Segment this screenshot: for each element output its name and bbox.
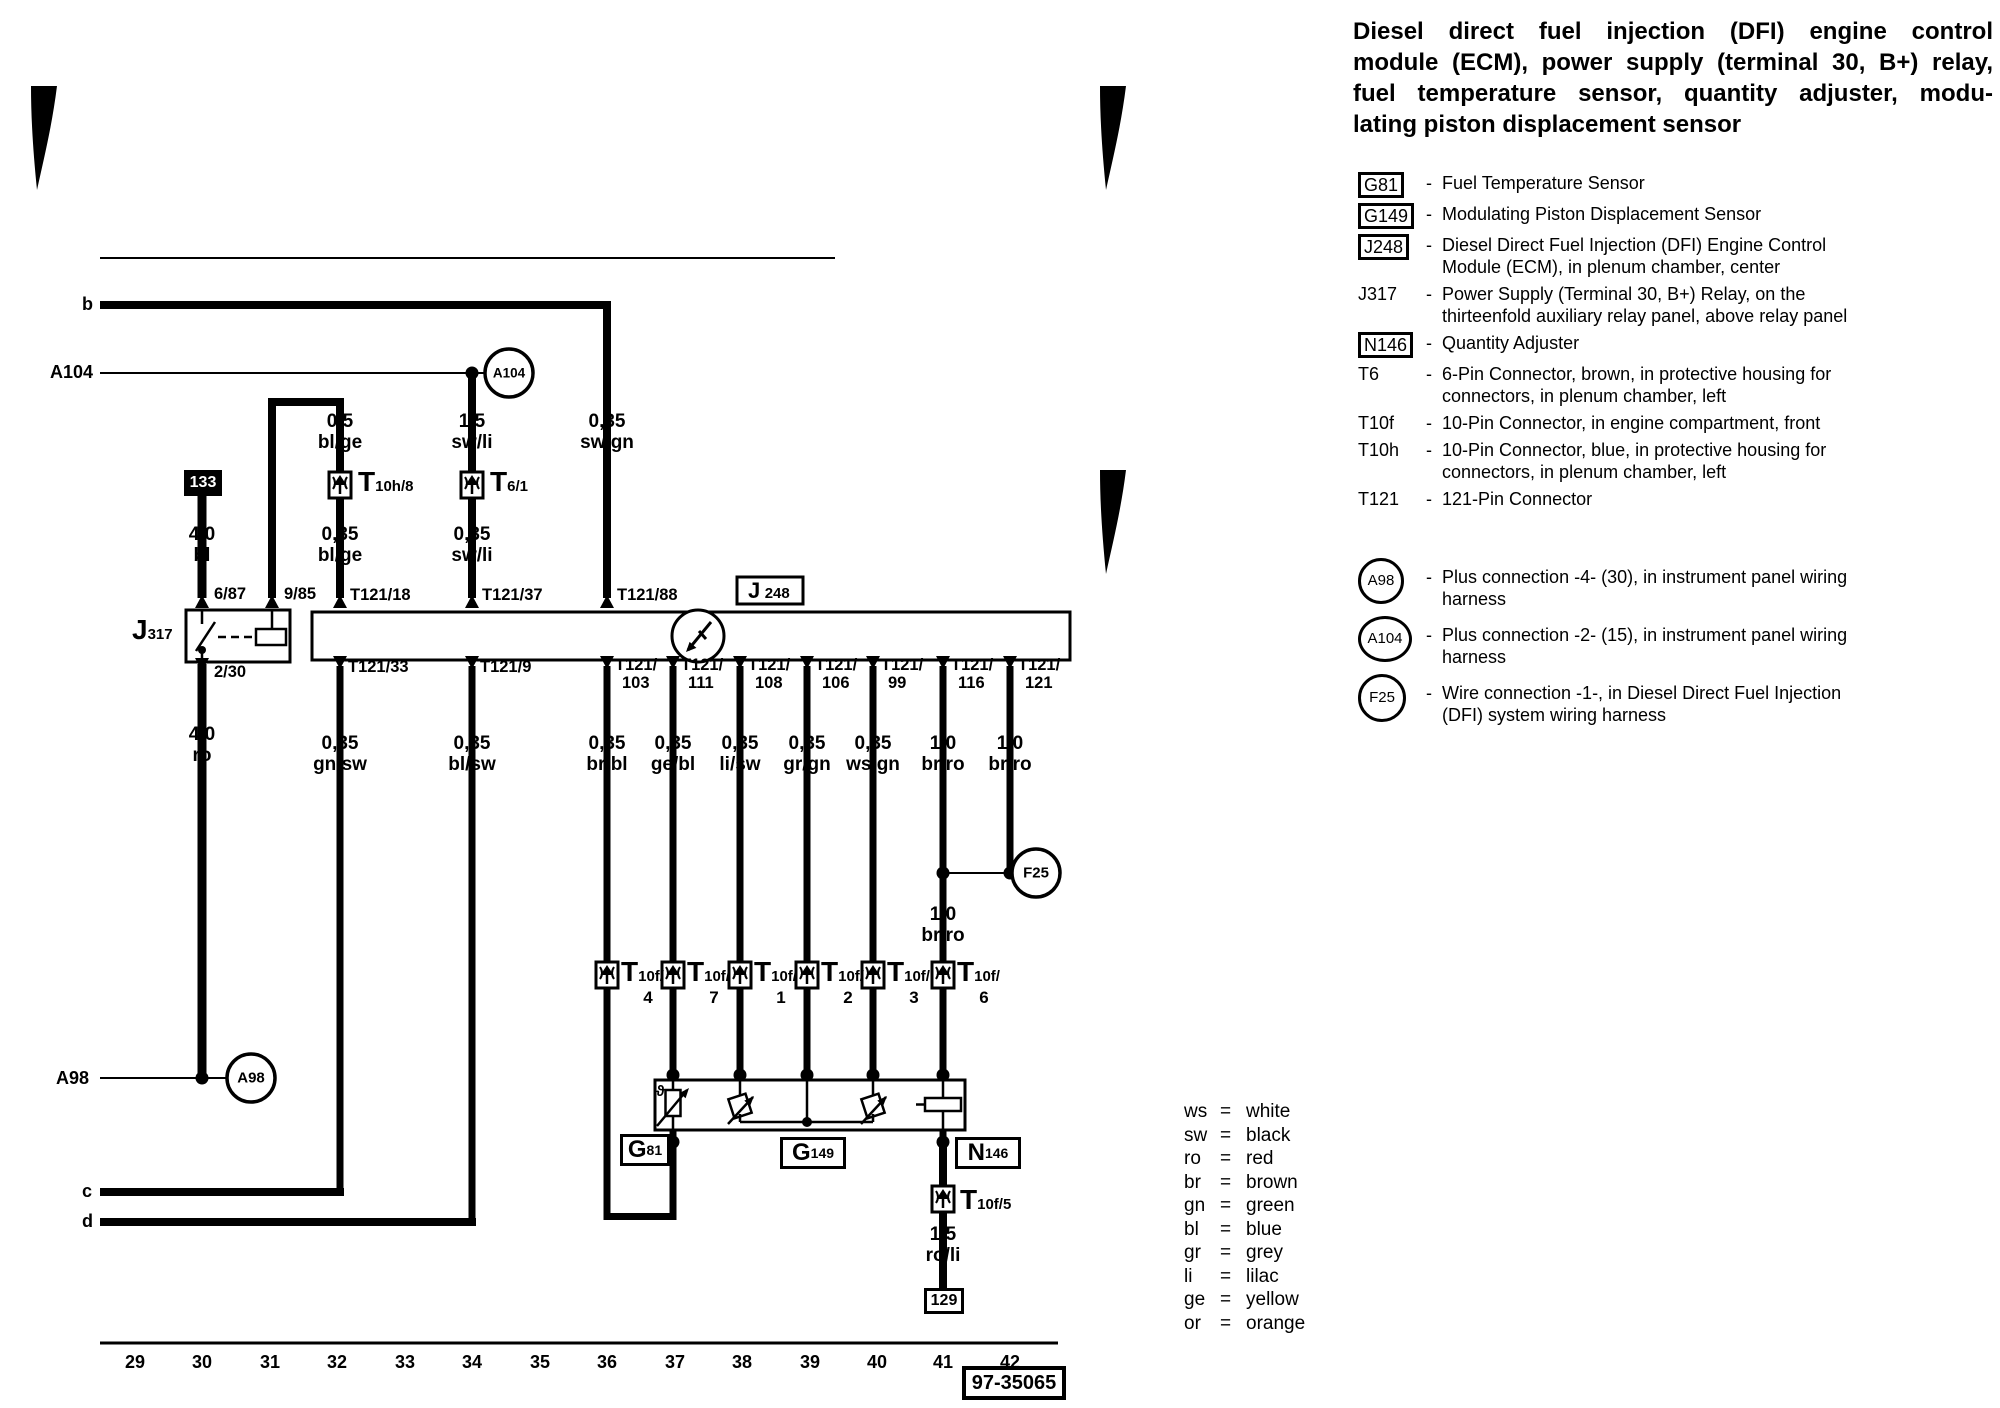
wire-color-key: ws=white sw=black ro=red br=brown gn=gre… — [1184, 1100, 1305, 1335]
ecm-j248-label: J 248 — [748, 578, 790, 604]
component-label-n146: N146 — [955, 1137, 1021, 1169]
legend-row: T6-6-Pin Connector, brown, in protective… — [1358, 363, 1918, 407]
ecm-pin-label: T121/37 — [482, 586, 543, 604]
track-number: 41 — [933, 1352, 953, 1373]
wire-label: 4,0ro — [189, 724, 215, 766]
wire-label: 0,35gr/gn — [783, 733, 831, 775]
color-key-row: ws=white — [1184, 1100, 1305, 1124]
terminal-129: 129 — [924, 1288, 964, 1314]
relay-pin-label: 6/87 — [214, 585, 246, 603]
wire-label: 0,35bl/ge — [318, 524, 362, 566]
color-key-row: or=orange — [1184, 1312, 1305, 1336]
legend-row: A98-Plus connection -4- (30), in instrum… — [1358, 566, 1918, 610]
legend-row: G81-Fuel Temperature Sensor — [1358, 172, 1918, 198]
track-number: 32 — [327, 1352, 347, 1373]
ecm-pin-label: T121/99 — [881, 656, 923, 692]
ecm-pin-label: T121/106 — [815, 656, 857, 692]
rail-label-c: c — [82, 1181, 92, 1202]
rail-label-b: b — [82, 294, 93, 315]
continuation-arrow — [1100, 470, 1126, 574]
relay-pin-label: 2/30 — [214, 663, 246, 681]
ecm-pin-label: T121/33 — [348, 658, 409, 676]
continuation-arrow — [1100, 86, 1126, 190]
wire-label: 0,35br/bl — [586, 733, 627, 775]
wire-label: 0,5bl/ge — [318, 411, 362, 453]
wire-label: 0,35li/sw — [719, 733, 760, 775]
rail-label-d: d — [82, 1211, 93, 1232]
wire-label: 0,35ws/gn — [846, 733, 900, 775]
wire-label: 1,0br/ro — [921, 904, 964, 946]
track-number: 39 — [800, 1352, 820, 1373]
track-number: 29 — [125, 1352, 145, 1373]
component-label-g149: G149 — [780, 1137, 846, 1169]
plug-connector-icon — [329, 472, 351, 498]
connector-pin-number: 1 — [776, 988, 785, 1008]
ecm-pin-label: T121/121 — [1018, 656, 1060, 692]
legend-row: F25-Wire connection -1-, in Diesel Direc… — [1358, 682, 1918, 726]
wire-label: 0,35gn/sw — [313, 733, 367, 775]
wire-label: 1,5sw/li — [451, 411, 492, 453]
legend-row: N146-Quantity Adjuster — [1358, 332, 1918, 358]
legend-row: T10h-10-Pin Connector, blue, in protecti… — [1358, 439, 1918, 483]
connector-label-t10f5: T10f/5 — [960, 1184, 1011, 1216]
wire-label: 0,35bl/sw — [448, 733, 496, 775]
connector-label-t10f: T10f/ — [887, 956, 930, 988]
rail-label-a104: A104 — [50, 362, 93, 383]
continuation-arrow — [31, 86, 57, 190]
track-number: 38 — [732, 1352, 752, 1373]
track-number: 34 — [462, 1352, 482, 1373]
wire-connection-f25: F25 — [1023, 865, 1049, 882]
color-key-row: ge=yellow — [1184, 1288, 1305, 1312]
terminal-133: 133 — [184, 470, 222, 496]
legend-row: T121-121-Pin Connector — [1358, 488, 1918, 510]
wiring-diagram-page: { "title_lines": [ "Diesel direct fuel i… — [0, 0, 2000, 1408]
track-number: 35 — [530, 1352, 550, 1373]
wire-label: 0,35sw/gn — [580, 411, 634, 453]
legend-row: T10f-10-Pin Connector, in engine compart… — [1358, 412, 1918, 434]
legend-row: A104-Plus connection -2- (15), in instru… — [1358, 624, 1918, 668]
track-number: 30 — [192, 1352, 212, 1373]
connector-label-t10f: T10f/ — [687, 956, 730, 988]
wire-label: 0,35sw/li — [451, 524, 492, 566]
legend-row: G149-Modulating Piston Displacement Sens… — [1358, 203, 1918, 229]
ecm-pin-label: T121/108 — [748, 656, 790, 692]
ecm-pin-label: T121/103 — [615, 656, 657, 692]
component-label-g81: G81 — [620, 1134, 670, 1166]
relay-pin-label: 9/85 — [284, 585, 316, 603]
wire-label: 1,0br/ro — [988, 733, 1031, 775]
ecm-pin-label: T121/9 — [480, 658, 531, 676]
wire-label: 0,35ge/bl — [651, 733, 695, 775]
connector-pin-number: 6 — [979, 988, 988, 1008]
temperature-theta-symbol: ϑ — [656, 1083, 665, 1100]
plus-connection-a98: A98 — [237, 1070, 265, 1087]
connector-label-t10f: T10f/ — [754, 956, 797, 988]
connector-pin-number: 3 — [909, 988, 918, 1008]
connector-label-t10f: T10f/ — [957, 956, 1000, 988]
page-title: Diesel direct fuel injection (DFI) engin… — [1353, 16, 1993, 140]
color-key-row: sw=black — [1184, 1124, 1305, 1148]
component-legend: G81-Fuel Temperature Sensor G149-Modulat… — [1358, 172, 1918, 740]
track-number: 37 — [665, 1352, 685, 1373]
track-number: 36 — [597, 1352, 617, 1373]
connector-label-t10h8: T10h/8 — [358, 466, 413, 498]
ecm-pin-label: T121/18 — [350, 586, 411, 604]
color-key-row: gr=grey — [1184, 1241, 1305, 1265]
track-number: 33 — [395, 1352, 415, 1373]
color-key-row: gn=green — [1184, 1194, 1305, 1218]
plug-connector-icon — [461, 472, 483, 498]
color-key-row: br=brown — [1184, 1171, 1305, 1195]
connector-pin-number: 7 — [709, 988, 718, 1008]
legend-row: J248-Diesel Direct Fuel Injection (DFI) … — [1358, 234, 1918, 278]
connector-pin-number: 2 — [843, 988, 852, 1008]
connector-label-t10f: T10f/ — [821, 956, 864, 988]
track-number: 40 — [867, 1352, 887, 1373]
ecm-pin-label: T121/88 — [617, 586, 678, 604]
plus-connection-a104: A104 — [493, 366, 525, 381]
color-key-row: ro=red — [1184, 1147, 1305, 1171]
wire-label: 4,0bl — [189, 524, 215, 566]
rail-label-a98: A98 — [56, 1068, 89, 1089]
wire-label: 1,0br/ro — [921, 733, 964, 775]
page-code: 97-35065 — [962, 1366, 1066, 1400]
track-number: 31 — [260, 1352, 280, 1373]
connector-label-t10f: T10f/ — [621, 956, 664, 988]
color-key-row: li=lilac — [1184, 1265, 1305, 1289]
wire-label: 1,5ro/li — [926, 1224, 961, 1266]
legend-row: J317-Power Supply (Terminal 30, B+) Rela… — [1358, 283, 1918, 327]
connector-pin-number: 4 — [643, 988, 652, 1008]
ecm-pin-label: T121/116 — [951, 656, 993, 692]
ecm-pin-label: T121/111 — [681, 656, 723, 692]
connector-label-t61: T6/1 — [490, 466, 528, 498]
color-key-row: bl=blue — [1184, 1218, 1305, 1242]
relay-j317-label: J317 — [132, 614, 173, 646]
